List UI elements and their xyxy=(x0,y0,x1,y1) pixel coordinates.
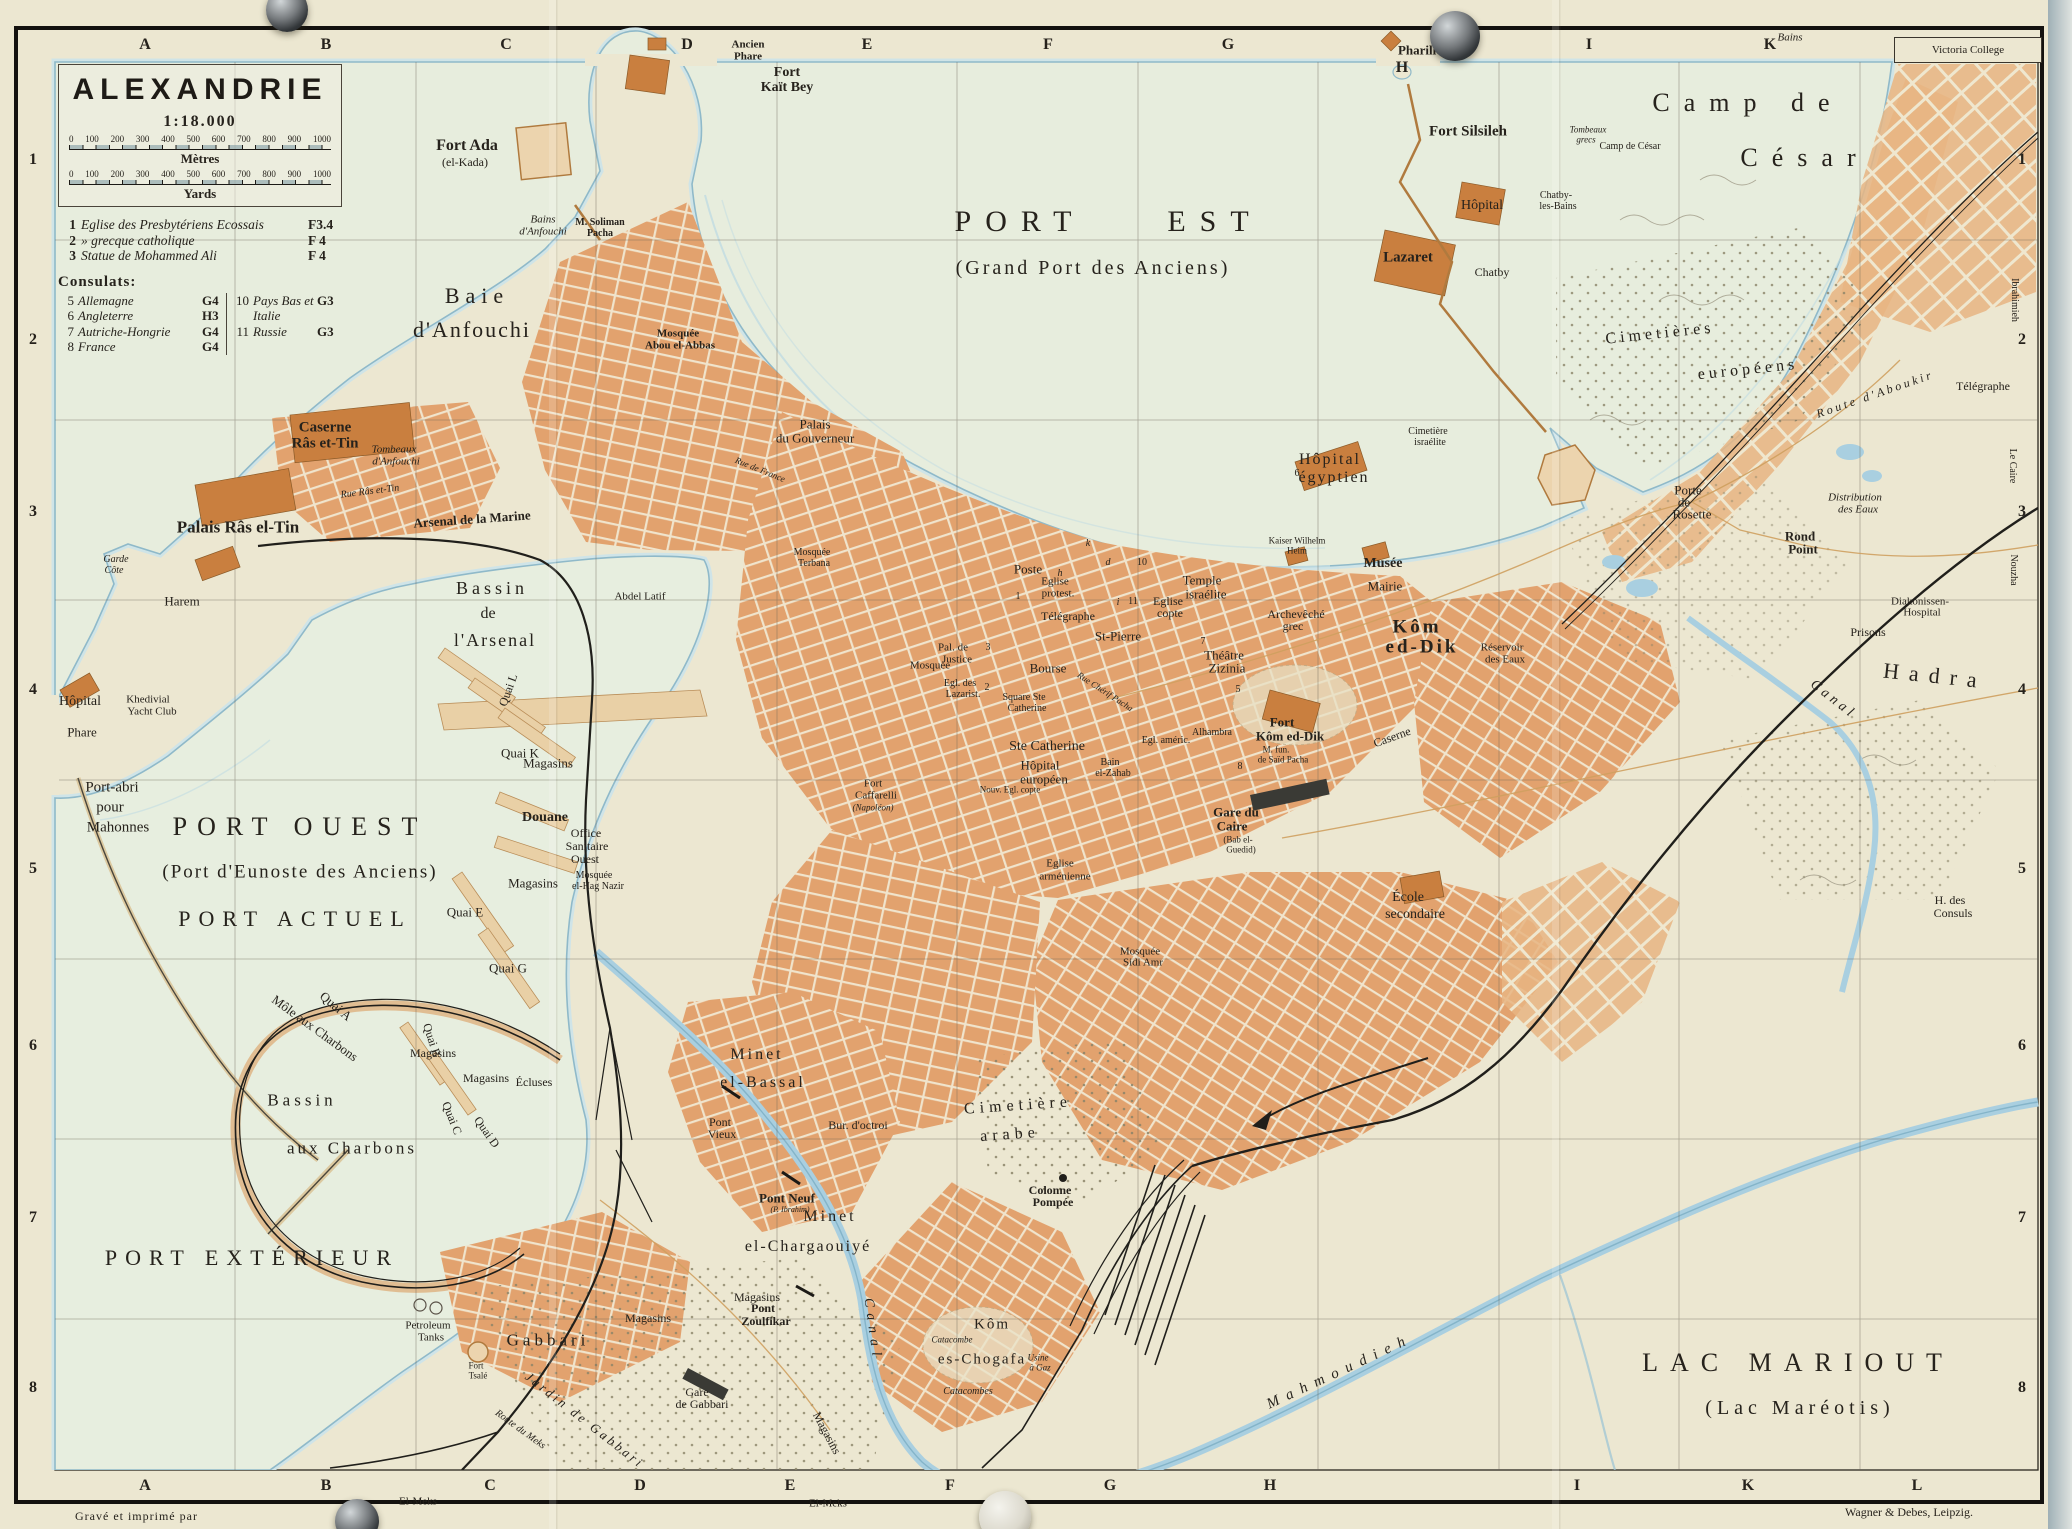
corner-label: Victoria College xyxy=(1932,44,2004,56)
legend-number: 3 xyxy=(58,248,76,264)
consulate-gridref: G4 xyxy=(202,324,226,340)
map-scale: 1:18.000 xyxy=(65,113,335,131)
consulate-number: 6 xyxy=(58,308,74,324)
consulate-name: Autriche-Hongrie xyxy=(78,324,202,340)
legend-name: Statue de Mohammed Ali xyxy=(81,248,308,264)
scale-bar: 01002003004005006007008009001000Yards xyxy=(69,170,331,202)
map-title: ALEXANDRIE xyxy=(65,73,335,107)
consulate-name: Pays Bas et Italie xyxy=(253,293,317,324)
title-box: ALEXANDRIE 1:18.000 01002003004005006007… xyxy=(58,64,342,207)
consulate-row: 8 France G4 xyxy=(58,339,226,355)
legend-gridref: F 4 xyxy=(308,233,342,249)
consulate-gridref: H3 xyxy=(202,308,226,324)
consulate-gridref: G3 xyxy=(317,293,341,324)
consulate-gridref: G3 xyxy=(317,324,341,340)
scale-bar: 01002003004005006007008009001000Mètres xyxy=(69,135,331,167)
consulate-row: 11 Russie G3 xyxy=(233,324,341,340)
consulate-row: 10 Pays Bas et Italie G3 xyxy=(233,293,341,324)
consulate-name: Allemagne xyxy=(78,293,202,309)
consulate-row: 5 Allemagne G4 xyxy=(58,293,226,309)
consulate-name: Angleterre xyxy=(78,308,202,324)
corner-label-box: Victoria College xyxy=(1894,37,2042,63)
consulates-right-column: 10 Pays Bas et Italie G3 11 Russie G3 xyxy=(226,293,341,355)
legend-gridref: F 4 xyxy=(308,248,342,264)
scale-bars: 01002003004005006007008009001000Mètres01… xyxy=(65,135,335,202)
consulate-number: 8 xyxy=(58,339,74,355)
legend-gridref: F3.4 xyxy=(308,217,342,233)
map-cartouche: ALEXANDRIE 1:18.000 01002003004005006007… xyxy=(58,64,342,355)
consulate-row: 7 Autriche-Hongrie G4 xyxy=(58,324,226,340)
legend-row: 1 Eglise des Presbytériens Ecossais F3.4 xyxy=(58,217,342,233)
consulate-number: 11 xyxy=(233,324,249,340)
consulate-number: 5 xyxy=(58,293,74,309)
consulate-gridref: G4 xyxy=(202,293,226,309)
legend-number: 1 xyxy=(58,217,76,233)
consulates-left-column: 5 Allemagne G4 6 Angleterre H3 7 xyxy=(58,293,226,355)
legend-row: 2 » grecque catholique F 4 xyxy=(58,233,342,249)
consulate-gridref: G4 xyxy=(202,339,226,355)
legend-name: Eglise des Presbytériens Ecossais xyxy=(81,217,308,233)
consulate-name: Russie xyxy=(253,324,317,340)
legend-row: 3 Statue de Mohammed Ali F 4 xyxy=(58,248,342,264)
metal-pin-top-right xyxy=(1430,11,1480,61)
consulate-number: 10 xyxy=(233,293,249,324)
book-page-edge xyxy=(2048,0,2072,1529)
consulate-row: 6 Angleterre H3 xyxy=(58,308,226,324)
consulate-number: 7 xyxy=(58,324,74,340)
legend-number: 2 xyxy=(58,233,76,249)
legend-name: » grecque catholique xyxy=(81,233,308,249)
scanned-map-sheet: PORTEST(Grand Port des Anciens)Baied'Anf… xyxy=(0,0,2072,1529)
map-legend: 1 Eglise des Presbytériens Ecossais F3.4… xyxy=(58,217,342,264)
engraver-credit: Gravé et imprimé par xyxy=(75,1510,198,1522)
publisher-credit: Wagner & Debes, Leipzig. xyxy=(1845,1506,1973,1518)
consulates-title: Consulats: xyxy=(58,274,342,291)
consulate-name: France xyxy=(78,339,202,355)
consulates-legend: Consulats: 5 Allemagne G4 6 Angleterre xyxy=(58,274,342,355)
